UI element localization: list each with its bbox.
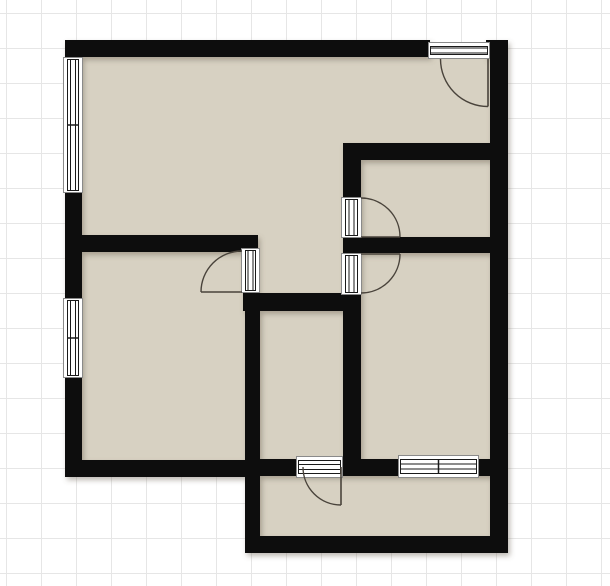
wall-upper-right-room-top[interactable] xyxy=(343,143,493,160)
door-top-right-panel[interactable] xyxy=(429,43,490,59)
door-mid-lower-panel-frame xyxy=(342,254,362,295)
wall-right-divider[interactable] xyxy=(343,237,493,253)
wall-bottom-room-bottom[interactable] xyxy=(245,536,508,553)
wall-bottom-left-wall[interactable] xyxy=(65,460,260,477)
door-mid-upper-panel-frame xyxy=(342,198,362,238)
floorplan-drawing xyxy=(0,0,610,586)
door-mid-upper-panel[interactable] xyxy=(342,198,362,238)
window-left-lower[interactable] xyxy=(64,299,83,378)
door-mid-lower-panel[interactable] xyxy=(342,254,362,295)
door-top-right-panel-frame xyxy=(429,43,490,59)
door-jog-panel[interactable] xyxy=(242,249,260,293)
wall-top-wall[interactable] xyxy=(70,40,430,57)
wall-left-divider[interactable] xyxy=(82,235,258,252)
wall-corridor-left-wall[interactable] xyxy=(245,293,260,553)
window-bottom[interactable] xyxy=(399,456,479,478)
door-jog-panel-frame xyxy=(242,249,260,293)
wall-jog-horizontal[interactable] xyxy=(243,293,361,311)
wall-right-wall[interactable] xyxy=(490,43,508,553)
floorplan-canvas[interactable] xyxy=(0,0,610,586)
window-left-upper[interactable] xyxy=(64,58,83,193)
